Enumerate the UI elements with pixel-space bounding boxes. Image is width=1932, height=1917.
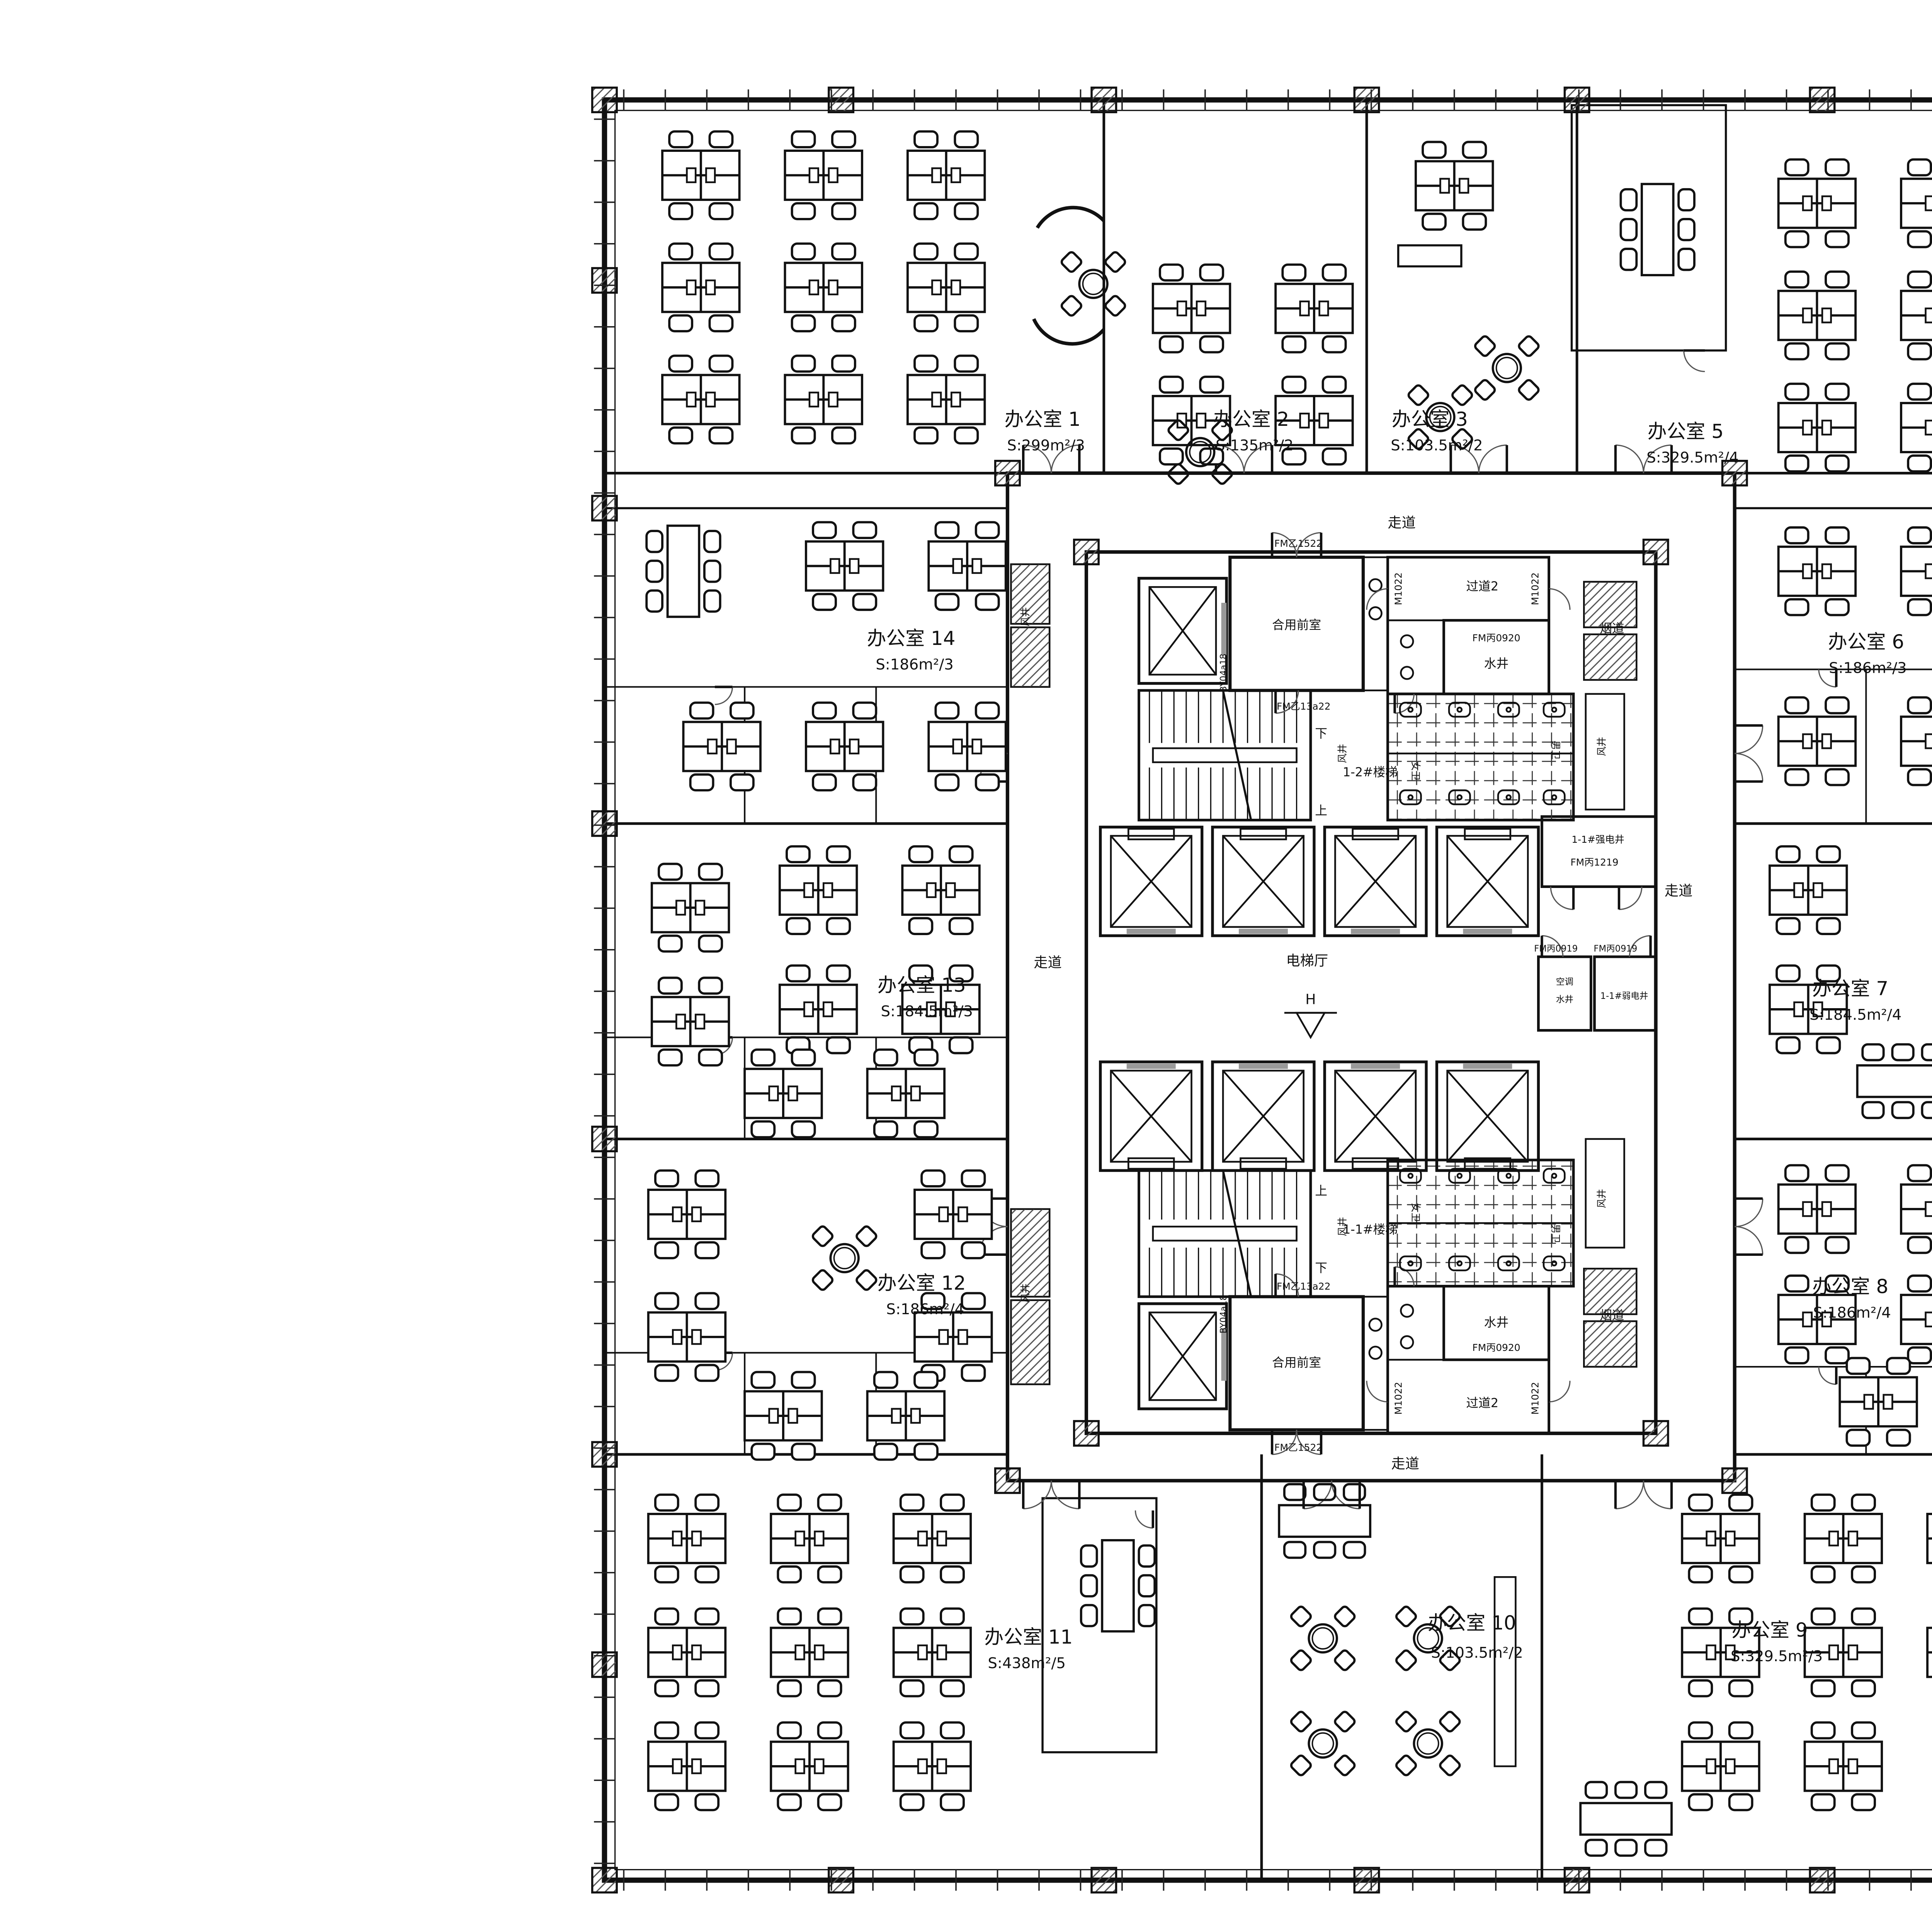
shaft-hatch: [1011, 1300, 1049, 1385]
room-label-1: 办公室 1: [1004, 408, 1080, 430]
wind-shaft-label: 风井: [1596, 1189, 1607, 1208]
elevator-door: [1463, 1064, 1512, 1069]
desk-cluster: [771, 1723, 848, 1810]
desk-cluster: [785, 131, 862, 219]
room-label-7: 办公室 7: [1812, 978, 1888, 1000]
desk-cluster: [662, 356, 740, 444]
pipe-riser: [1369, 579, 1382, 592]
door-m1022: M1022: [1529, 572, 1541, 605]
round-table: [1290, 1710, 1356, 1776]
desk-cluster: [648, 1170, 726, 1258]
column: [592, 1127, 617, 1151]
front-room-label-bottom: 合用前室: [1272, 1356, 1321, 1370]
column: [1074, 1421, 1099, 1446]
round-table: [1474, 335, 1540, 401]
desk-cluster: [908, 131, 985, 219]
desk-cluster: [894, 1723, 971, 1810]
wall: [1043, 1498, 1156, 1752]
counterweight: [1240, 829, 1286, 839]
female-wc-label-top: 女卫: [1410, 761, 1421, 781]
room-label-6: 办公室 6: [1828, 631, 1904, 653]
ac-water-shaft-line1: 空调: [1556, 977, 1573, 987]
door-fm-bing-0920-top: FM丙0920: [1472, 633, 1520, 644]
core-room: [1363, 557, 1388, 691]
smoke-duct-label-bottom: 烟道: [1600, 1309, 1624, 1323]
column: [995, 1468, 1020, 1493]
door-swing: [1616, 445, 1644, 473]
shaft-hatch: [1584, 634, 1636, 680]
desk-cluster: [1682, 1495, 1759, 1582]
column: [1092, 1868, 1116, 1892]
desk-cluster: [1805, 1495, 1882, 1582]
walkway-label-top: 走道: [1388, 514, 1416, 531]
door-swing: [1643, 1481, 1672, 1509]
room-area-5: S:329.5m²/4: [1646, 449, 1738, 466]
desk-cluster: [1779, 697, 1856, 785]
door-swing: [1735, 754, 1763, 782]
elevator-door: [1127, 1064, 1176, 1069]
door-swing: [1551, 887, 1573, 910]
desk-cluster: [1779, 1165, 1856, 1253]
door-fm-yi-1522-bottom: FM乙1522: [1274, 1442, 1322, 1453]
elevator-door: [1221, 603, 1227, 655]
elevator-hall-label: 电梯厅: [1286, 953, 1328, 969]
room-area-14: S:186m²/3: [876, 656, 953, 673]
column: [1354, 88, 1379, 112]
room-label-5: 办公室 5: [1648, 420, 1724, 443]
desk-cluster: [683, 703, 760, 790]
room-area-1: S:299m²/3: [1007, 437, 1085, 454]
pipe-riser: [1401, 667, 1413, 679]
round-table: [1395, 1710, 1461, 1776]
desk-cluster: [745, 1050, 822, 1137]
counterweight: [1128, 1158, 1174, 1169]
desk-cluster: [1779, 527, 1856, 615]
door-fm-bing-0919: FM丙0919: [1534, 944, 1578, 954]
desk-cluster: [1682, 1723, 1759, 1810]
desk-cluster: [1770, 846, 1847, 934]
door-swing: [1735, 1226, 1763, 1255]
column: [592, 268, 617, 293]
room-area-8: S:186m²/4: [1813, 1304, 1891, 1322]
stair-handrail: [1153, 1226, 1297, 1240]
stair-up-bottom: 上: [1315, 1184, 1327, 1198]
walkway-label-left: 走道: [1034, 954, 1062, 971]
door-fm-bing-1219: FM丙1219: [1570, 857, 1618, 868]
room-area-13: S:184.5m²/3: [881, 1003, 973, 1020]
weak-electric-label: 1-1#弱电井: [1600, 991, 1648, 1001]
restroom: [1388, 694, 1573, 820]
door-swing: [1616, 1481, 1644, 1509]
pipe-riser: [1369, 607, 1382, 619]
counterweight: [1353, 829, 1398, 839]
desk-cluster: [648, 1293, 726, 1381]
desk-cluster: [1805, 1723, 1882, 1810]
elevator-door: [1463, 929, 1512, 934]
room-area-12: S:186m²/4: [886, 1301, 964, 1318]
stair-down-top: 下: [1315, 727, 1327, 741]
column: [995, 461, 1020, 485]
door-swing: [1735, 1199, 1763, 1227]
core-room: [1538, 957, 1591, 1030]
desk-cluster: [1901, 697, 1932, 785]
door-swing: [1135, 1510, 1153, 1528]
desk-cluster: [894, 1495, 971, 1582]
wind-shaft-label: 风井: [1337, 1217, 1348, 1236]
shaft-hatch: [1011, 627, 1049, 687]
elevator-door: [1239, 1064, 1288, 1069]
room-label-3: 办公室 3: [1392, 408, 1468, 430]
desk-cluster: [1901, 1165, 1932, 1253]
desk-cluster: [771, 1495, 848, 1582]
door-fm-yi-1522-top: FM乙1522: [1274, 538, 1322, 549]
desk-cluster: [1927, 1609, 1932, 1696]
shaft-hatch: [1584, 582, 1636, 628]
room-label-8: 办公室 8: [1812, 1276, 1888, 1298]
shaft-hatch: [1584, 1269, 1636, 1314]
desk-cluster: [1779, 160, 1856, 247]
stair-up-top: 上: [1315, 804, 1327, 818]
door-fm-bing-0919: FM丙0919: [1594, 944, 1637, 954]
hall-elevation-mark: H: [1305, 991, 1316, 1007]
room-area-2: S:135m²/2: [1216, 437, 1293, 454]
core-room: [1363, 1297, 1388, 1430]
sofa: [1398, 245, 1461, 266]
column: [592, 496, 617, 520]
room-area-10: S:103.5m²/2: [1431, 1644, 1523, 1662]
door-swing: [1735, 725, 1763, 754]
stair-1-1-label: 1-1#楼梯: [1343, 1223, 1398, 1237]
door-m1022: M1022: [1393, 1382, 1404, 1415]
wind-shaft-label: 风井: [1596, 737, 1607, 756]
column: [1092, 88, 1116, 112]
desk-cluster: [1901, 272, 1932, 359]
desk-cluster: [785, 243, 862, 331]
louver-by-label-top: BY04a18: [1219, 654, 1229, 692]
stair-handrail: [1153, 748, 1297, 762]
passage2-label-bottom: 过道2: [1466, 1396, 1498, 1410]
room-label-11: 办公室 11: [984, 1626, 1073, 1648]
desk-cluster: [867, 1050, 945, 1137]
room-label-14: 办公室 14: [867, 627, 956, 650]
desk-cluster: [648, 1495, 726, 1582]
room-area-6: S:186m²/3: [1829, 659, 1906, 677]
desk-cluster: [1779, 272, 1856, 359]
male-wc-label-bottom: 男卫: [1550, 1224, 1561, 1243]
desk-cluster: [806, 703, 883, 790]
door-swing: [1051, 1481, 1080, 1509]
desk-cluster: [908, 356, 985, 444]
furniture-layer: [646, 131, 1932, 1856]
water-shaft-label-top: 水井: [1484, 657, 1509, 671]
desk-cluster: [648, 1723, 726, 1810]
column: [1810, 1868, 1834, 1892]
desk-cluster: [662, 243, 740, 331]
elevator-door: [1351, 929, 1400, 934]
walkway-label-right: 走道: [1665, 882, 1693, 899]
desk-cluster: [867, 1372, 945, 1460]
conference-table: [1580, 1782, 1672, 1856]
conference-table: [1857, 1044, 1932, 1118]
column: [1354, 1868, 1379, 1892]
room-area-3: S:103.5m²/2: [1391, 437, 1483, 454]
wind-shaft-label: 风井: [1020, 1284, 1031, 1303]
desk-cluster: [1153, 265, 1230, 352]
desk-cluster: [806, 522, 883, 610]
ac-water-shaft-line2: 水井: [1556, 995, 1573, 1005]
desk-cluster: [902, 846, 980, 934]
column: [592, 1868, 617, 1892]
room-area-11: S:438m²/5: [988, 1655, 1066, 1672]
desk-cluster: [648, 1609, 726, 1696]
room-area-9: S:329.5m²/3: [1731, 1648, 1823, 1665]
door-swing: [1023, 1481, 1051, 1509]
female-wc-label-bottom: 女卫: [1410, 1203, 1421, 1222]
column: [592, 1442, 617, 1466]
desk-cluster: [1840, 1358, 1917, 1446]
column: [1074, 540, 1099, 564]
desk-cluster: [1276, 265, 1353, 352]
round-table: [1290, 1605, 1356, 1671]
door-swing: [1619, 887, 1642, 910]
desk-cluster: [780, 846, 857, 934]
desk-cluster: [1901, 1276, 1932, 1363]
column: [1810, 88, 1834, 112]
stair-down-bottom: 下: [1315, 1261, 1327, 1275]
floor-plan-svg: 办公室 1 S:299m²/3 办公室 2 S:135m²/2 办公室 3 S:…: [0, 0, 1932, 1917]
conference-table: [1081, 1540, 1155, 1631]
column: [1565, 88, 1589, 112]
conference-table: [1279, 1484, 1370, 1558]
curved-sofa: [1034, 319, 1104, 344]
pipe-riser: [1401, 1336, 1413, 1349]
wind-shaft-label: 风井: [1020, 607, 1031, 626]
core-room: [1388, 557, 1549, 694]
wall: [1572, 105, 1726, 350]
column: [1722, 1468, 1747, 1493]
walkway-label-bottom: 走道: [1391, 1455, 1419, 1472]
louver-by-label-bottom: BY04a18: [1219, 1295, 1229, 1334]
conference-table: [1621, 184, 1694, 275]
stair-1-2-label: 1-2#楼梯: [1343, 765, 1398, 779]
cabinet: [1495, 1577, 1515, 1766]
elevator-door: [1239, 929, 1288, 934]
desk-cluster: [1901, 160, 1932, 247]
elevation-mark: [1297, 1013, 1325, 1037]
door-fm-yi-13a22-bottom: FM乙13a22: [1277, 1281, 1331, 1292]
elevator-door: [1351, 1064, 1400, 1069]
door-swing: [1684, 350, 1705, 371]
desk-cluster: [771, 1609, 848, 1696]
desk-cluster: [894, 1609, 971, 1696]
passage2-label-top: 过道2: [1466, 580, 1498, 594]
column: [829, 1868, 853, 1892]
pipe-riser: [1369, 1318, 1382, 1331]
door-layer: [715, 350, 1932, 1528]
desk-cluster: [745, 1372, 822, 1460]
elevator-door: [1221, 1328, 1227, 1381]
round-table: [811, 1225, 878, 1291]
front-room-label-top: 合用前室: [1272, 618, 1321, 632]
desk-cluster: [652, 864, 729, 952]
room-label-13: 办公室 13: [878, 974, 966, 997]
column: [1643, 540, 1668, 564]
conference-table: [646, 526, 720, 617]
desk-cluster: [915, 1170, 992, 1258]
water-shaft-label-bottom: 水井: [1484, 1316, 1509, 1330]
desk-cluster: [1416, 142, 1493, 230]
desk-cluster: [1901, 384, 1932, 471]
pipe-riser: [1369, 1347, 1382, 1359]
counterweight: [1128, 829, 1174, 839]
column: [1643, 1421, 1668, 1446]
counterweight: [1240, 1158, 1286, 1169]
desk-cluster: [1927, 1495, 1932, 1582]
door-swing: [1367, 1381, 1388, 1402]
desk-cluster: [1779, 384, 1856, 471]
column: [592, 811, 617, 836]
room-label-10: 办公室 10: [1428, 1612, 1516, 1634]
room-label-9: 办公室 9: [1731, 1619, 1808, 1641]
desk-cluster: [908, 243, 985, 331]
desk-cluster: [929, 703, 1006, 790]
wind-shaft-label: 风井: [1337, 744, 1348, 763]
door-fm-yi-13a22-top: FM乙13a22: [1277, 701, 1331, 712]
pipe-riser: [1401, 635, 1413, 648]
desk-cluster: [662, 131, 740, 219]
room-area-7: S:184.5m²/4: [1810, 1006, 1901, 1024]
pipe-riser: [1401, 1305, 1413, 1317]
room-label-12: 办公室 12: [878, 1272, 966, 1294]
door-swing: [1819, 1367, 1836, 1384]
room-label-2: 办公室 2: [1213, 408, 1289, 430]
desk-cluster: [929, 522, 1006, 610]
desk-cluster: [780, 966, 857, 1053]
shaft-hatch: [1584, 1321, 1636, 1367]
desk-cluster: [785, 356, 862, 444]
door-swing: [1549, 589, 1570, 610]
door-swing: [1479, 445, 1507, 473]
door-fm-bing-0920-bottom: FM丙0920: [1472, 1342, 1520, 1353]
column: [1565, 1868, 1589, 1892]
core-room: [1542, 816, 1656, 886]
desk-cluster: [652, 978, 729, 1065]
elevator-door: [1127, 929, 1176, 934]
desk-cluster: [1901, 527, 1932, 615]
round-table: [1060, 251, 1126, 317]
column: [592, 88, 617, 112]
smoke-duct-label-top: 烟道: [1600, 622, 1624, 636]
door-m1022: M1022: [1529, 1382, 1541, 1415]
door-swing: [1549, 1381, 1570, 1402]
door-m1022: M1022: [1393, 572, 1404, 605]
curved-sofa: [1037, 208, 1104, 228]
counterweight: [1465, 829, 1510, 839]
door-swing: [715, 687, 732, 704]
column: [829, 88, 853, 112]
male-wc-label-top: 男卫: [1550, 740, 1561, 760]
strong-electric-label: 1-1#强电井: [1571, 834, 1624, 845]
